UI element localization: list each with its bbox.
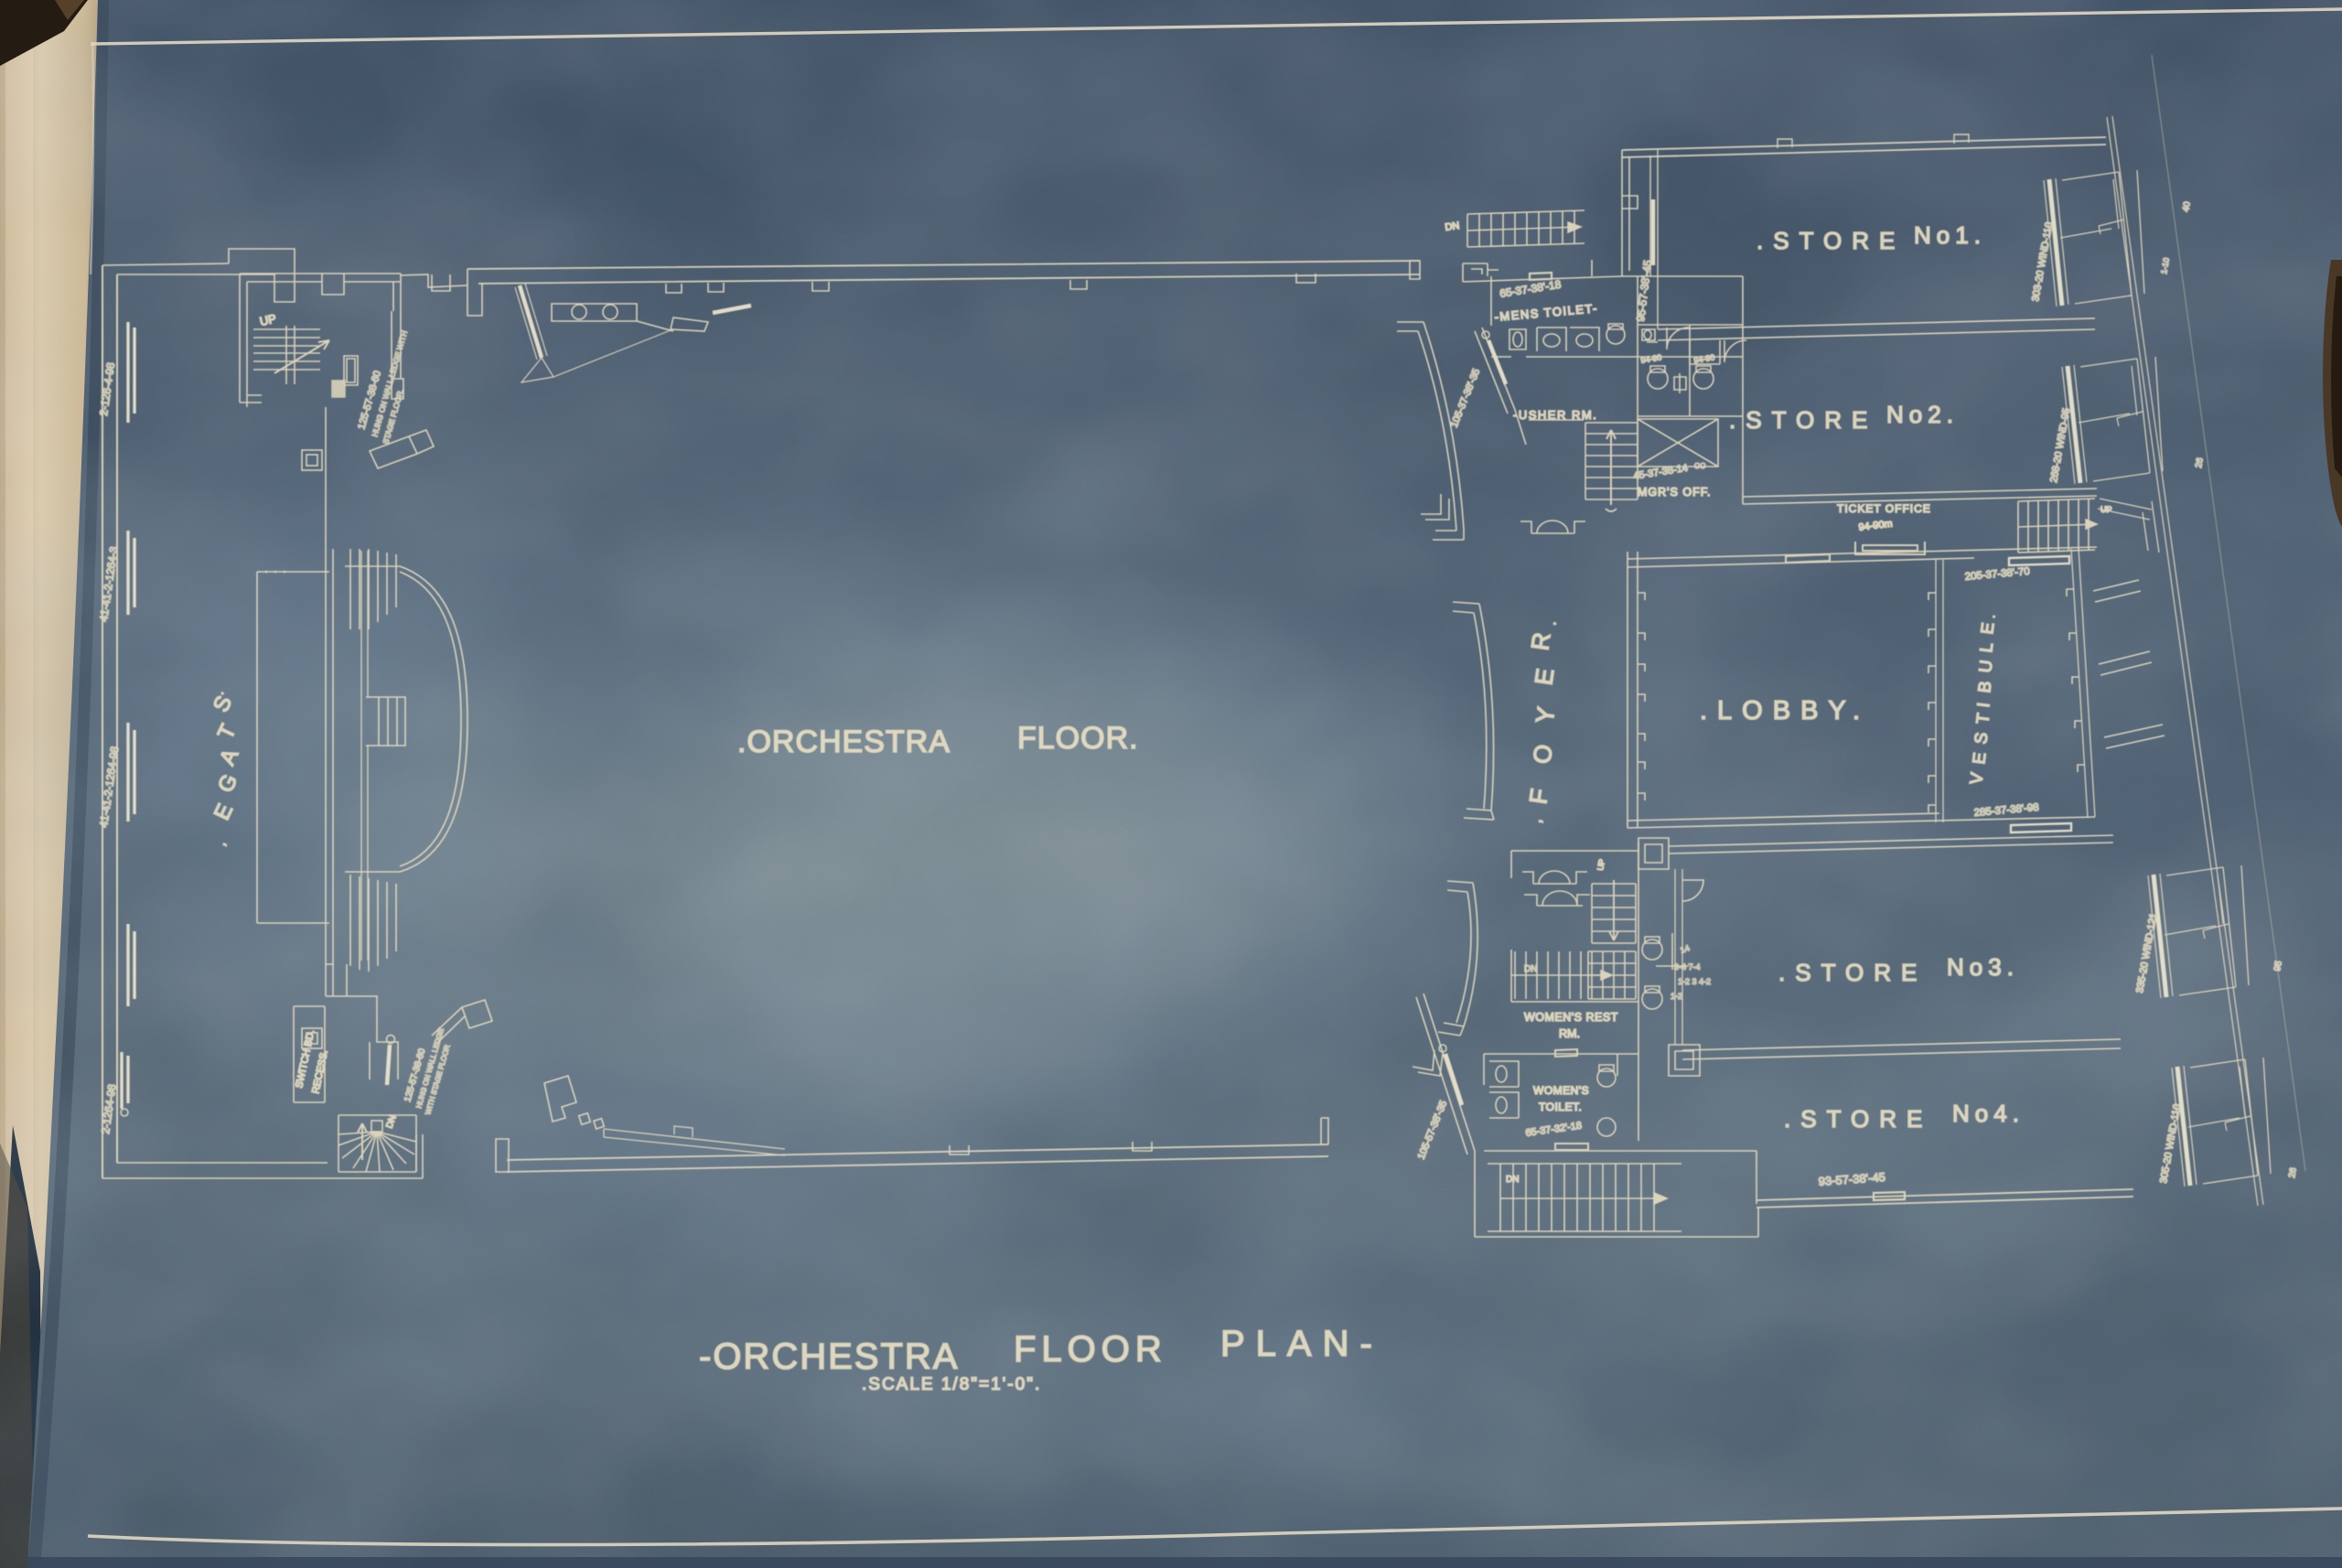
svg-text:No2.: No2.: [1886, 401, 1959, 428]
svg-text:DN: DN: [1524, 964, 1537, 974]
svg-text:E: E: [1970, 751, 1990, 765]
svg-text:1-2: 1-2: [1671, 992, 1682, 1001]
svg-text:.SCALE 1/8"=1'-0".: .SCALE 1/8"=1'-0".: [862, 1375, 1041, 1394]
svg-text:.STORE: .STORE: [1784, 1105, 1932, 1133]
svg-text:E: E: [1978, 621, 1998, 635]
svg-text:R: R: [1526, 630, 1555, 651]
svg-text:OO: OO: [1694, 462, 1705, 470]
svg-text:RM.: RM.: [1559, 1027, 1580, 1040]
svg-text:No3.: No3.: [1947, 953, 2019, 981]
svg-text:B: B: [1975, 680, 1995, 693]
svg-text:TOILET.: TOILET.: [1539, 1101, 1582, 1113]
svg-text:.STORE: .STORE: [1729, 406, 1877, 434]
svg-text:FLOOR: FLOOR: [1014, 1329, 1167, 1369]
svg-text:.STORE: .STORE: [1778, 959, 1927, 986]
svg-text:.LOBBY.: .LOBBY.: [1700, 696, 1870, 725]
svg-text:WOMEN'S: WOMEN'S: [1533, 1084, 1589, 1097]
svg-text:WOMEN'S REST: WOMEN'S REST: [1524, 1011, 1618, 1024]
svg-text:FLOOR.: FLOOR.: [1017, 721, 1139, 756]
svg-text:DN: DN: [1445, 220, 1460, 233]
svg-text:MGR'S OFF.: MGR'S OFF.: [1638, 486, 1711, 499]
svg-text:PLAN-: PLAN-: [1220, 1324, 1383, 1364]
svg-text:O: O: [1528, 743, 1558, 766]
svg-text:.ORCHESTRA: .ORCHESTRA: [737, 725, 951, 759]
svg-text:DN: DN: [1506, 1175, 1519, 1185]
svg-text:-ORCHESTRA: -ORCHESTRA: [699, 1337, 959, 1377]
svg-text:No1.: No1.: [1914, 221, 1986, 249]
svg-text:.STORE: .STORE: [1756, 227, 1905, 254]
svg-text:No4.: No4.: [1952, 1100, 2025, 1127]
svg-text:3-4 7-4: 3-4 7-4: [1674, 962, 1701, 972]
svg-text:S: S: [1971, 731, 1992, 745]
svg-text:TICKET OFFICE: TICKET OFFICE: [1837, 502, 1931, 515]
svg-text:U: U: [1976, 659, 1997, 673]
svg-text:UP: UP: [1595, 858, 1606, 871]
